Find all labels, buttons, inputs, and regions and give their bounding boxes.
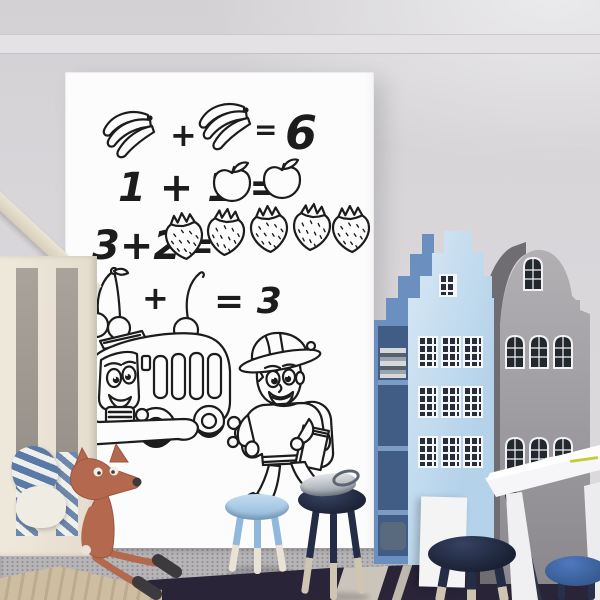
equation-strawberries: 3+2= (92, 203, 370, 269)
equation-bananas: + = 6 (104, 104, 317, 160)
stool-seat (225, 494, 289, 520)
banana-bunch-icon (104, 112, 154, 157)
equals-3: = 3 (214, 281, 282, 322)
arched-window (506, 336, 524, 368)
house-window (441, 386, 461, 418)
equals-sign: = (254, 113, 277, 146)
house-window (418, 386, 438, 418)
rug-stripe (392, 562, 413, 600)
gray-house-wardrobe (478, 232, 596, 584)
fox-paw (81, 545, 91, 555)
toy-on-shelf (380, 522, 406, 550)
strawberry-icon (332, 205, 370, 253)
fox-pupil (97, 471, 101, 475)
fox-head (71, 459, 140, 500)
result-6: 6 (285, 106, 317, 160)
arched-window (530, 336, 548, 368)
stool-leg (254, 516, 261, 574)
house-window (439, 274, 457, 297)
stool-seat (428, 536, 516, 572)
plus-sign: + (170, 116, 197, 154)
fox-nose (133, 478, 142, 487)
arched-window (524, 258, 542, 290)
house-window (441, 436, 461, 468)
strawberry-icon (292, 203, 332, 252)
expression-1plus1: 1 + 1 = (118, 165, 282, 211)
fox-ear (110, 444, 128, 462)
plush-fox-toy (42, 438, 187, 600)
arched-window (554, 336, 572, 368)
stool-seat (545, 556, 600, 586)
fox-foot (158, 560, 176, 572)
house-window (418, 336, 438, 368)
house-window (463, 436, 483, 468)
equation-apples: 1 + 1 = (118, 159, 300, 211)
cartoon-bus-drawing (83, 331, 251, 448)
shelf-interior (378, 326, 408, 556)
shelf-board (378, 380, 408, 385)
shelf-board (378, 510, 408, 515)
books-on-shelf (380, 348, 406, 378)
fox-pupil (111, 470, 115, 474)
stool-leg (467, 572, 476, 600)
shelf-board (378, 446, 408, 451)
kids-room-photo: + = 6 1 + 1 = 3+2= (0, 0, 600, 600)
wall-molding (0, 34, 600, 54)
house-window (441, 336, 461, 368)
house-window (463, 386, 483, 418)
plus-sign: + (142, 279, 169, 317)
stool-leg (330, 512, 337, 600)
house-window (418, 436, 438, 468)
strawberry-icon (250, 205, 289, 253)
house-window (463, 336, 483, 368)
cherry-single-icon (174, 272, 204, 342)
fox-foot (138, 582, 156, 594)
banana-bunch-icon (200, 104, 250, 149)
equation-cherries: + = 3 (84, 268, 282, 342)
